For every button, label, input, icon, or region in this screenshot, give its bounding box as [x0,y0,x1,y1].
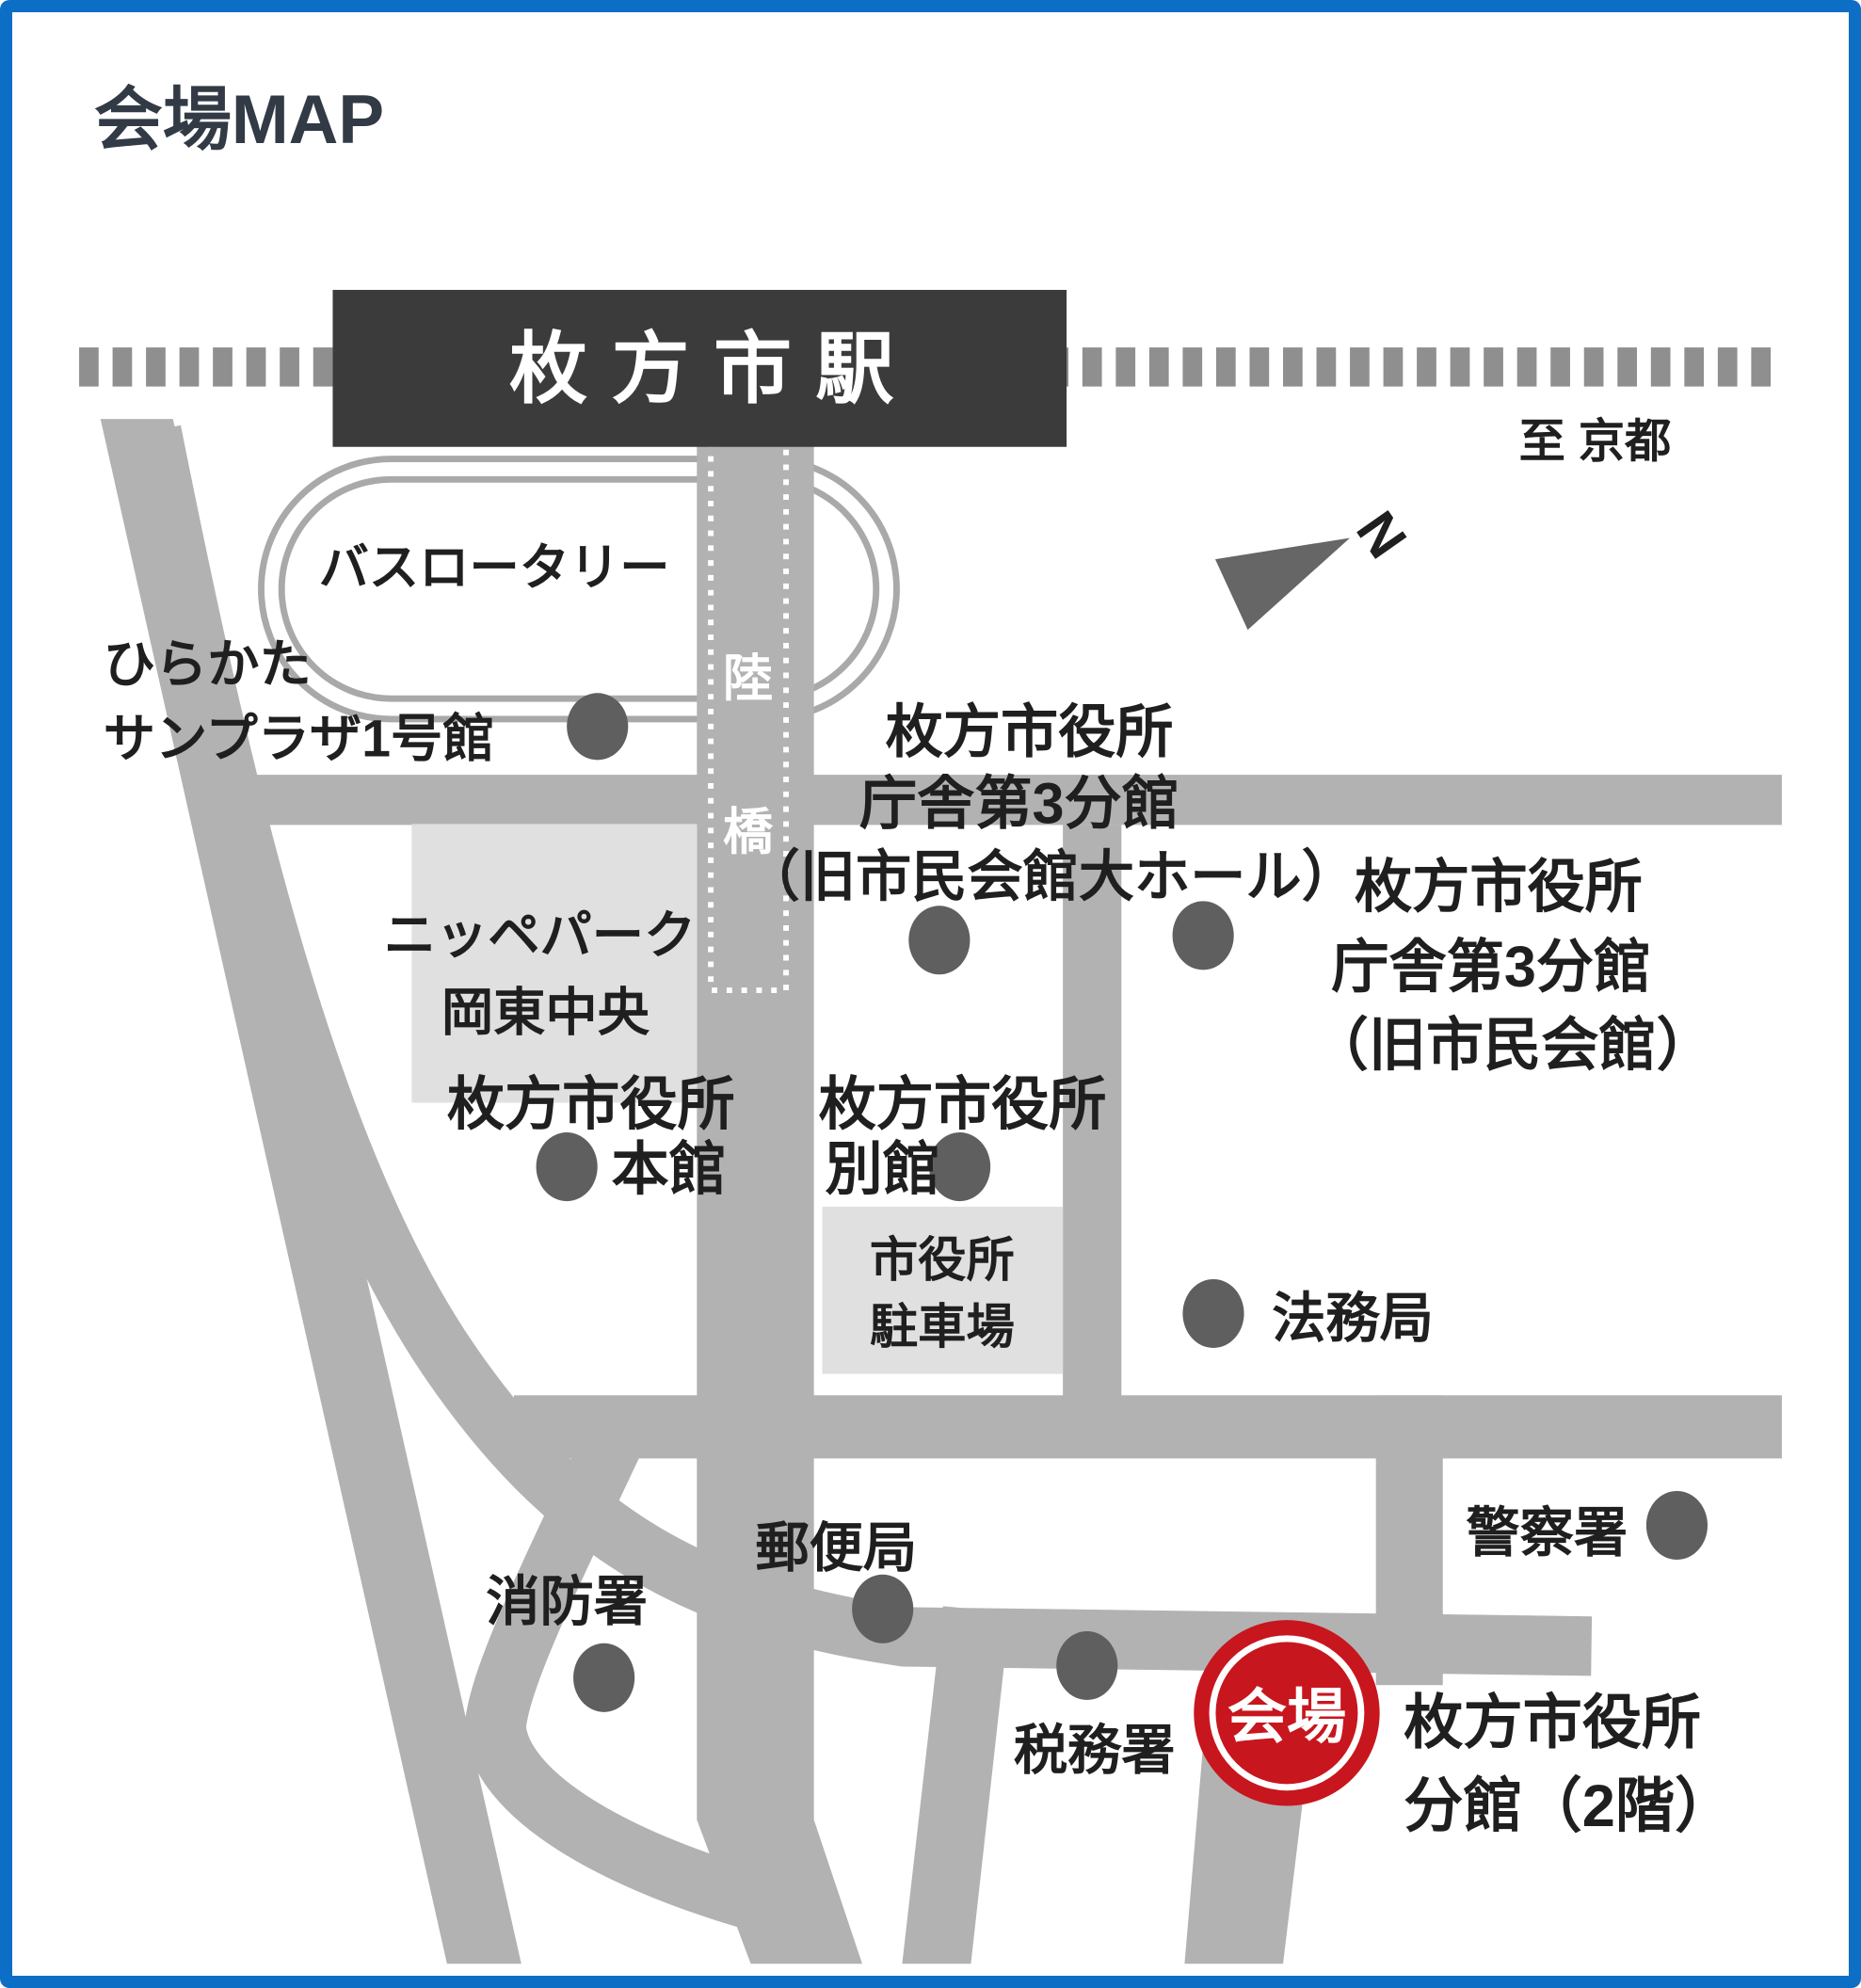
road-vertical-right [1376,1395,1443,1685]
sunplaza-line2: サンプラザ1号館 [104,709,495,767]
annex3-hall-line3: （旧市民会館大ホール） [745,844,1357,907]
station-name: 枚方市駅 [509,325,918,412]
yuubinkyoku-label: 郵便局 [755,1518,917,1579]
map-canvas: 陸 橋 枚方市駅 至 京都 N バスロータリー ひらかた [12,12,1849,1976]
annex3-hall-line2: 庁舎第3分館 [859,771,1179,835]
venue-marker: 会場 [1194,1620,1379,1805]
annex3-line1: 枚方市役所 [1355,855,1643,919]
honkan-line1: 枚方市役所 [447,1072,735,1136]
parking-line2: 駐車場 [870,1300,1015,1354]
venue-map: 陸 橋 枚方市駅 至 京都 N バスロータリー ひらかた [0,0,1861,1988]
annex3-line2: 庁舎第3分館 [1331,935,1651,999]
shoubousho-label: 消防署 [486,1572,648,1632]
north-letter: N [1344,500,1419,569]
bekkan-line2: 別館 [825,1137,939,1201]
venue-building-line1: 枚方市役所 [1404,1690,1701,1756]
houmukyoku-label: 法務局 [1272,1289,1434,1349]
bekkan-line1: 枚方市役所 [819,1072,1107,1136]
page-title: 会場MAP [94,82,384,158]
annex3-hall-line1: 枚方市役所 [886,699,1174,763]
nippe-park-line1: ニッペパーク [384,906,697,965]
houmukyoku-dot [1182,1279,1243,1348]
yuubinkyoku-dot [852,1575,913,1643]
keisatsusho-dot [1646,1491,1708,1560]
sunplaza-line1: ひらかた [104,634,312,693]
annex3-line3: （旧市民会館） [1311,1013,1714,1077]
parking-line1: 市役所 [870,1233,1015,1287]
honkan-dot [537,1132,598,1201]
annex3-hall-dot-left [908,906,970,974]
north-arrow-icon [1215,537,1350,630]
zeimusho-dot [1056,1631,1117,1700]
sunplaza-dot [567,693,628,760]
bridge-char-1: 陸 [723,651,773,707]
north-compass: N [1215,500,1420,630]
road-horizontal-b [514,1395,1782,1458]
annex3-hall-dot-right [1173,901,1234,970]
bus-rotary-label: バスロータリー [319,540,670,596]
shoubousho-dot [573,1643,634,1712]
nippe-park-line2: 岡東中央 [441,983,650,1041]
venue-building-line2: 分館（2階） [1404,1773,1734,1839]
honkan-line2: 本館 [612,1137,727,1201]
zeimusho-label: 税務署 [1014,1721,1176,1781]
venue-marker-label: 会場 [1227,1684,1346,1750]
to-kyoto-label: 至 京都 [1519,416,1672,468]
keisatsusho-label: 警察署 [1466,1503,1628,1563]
